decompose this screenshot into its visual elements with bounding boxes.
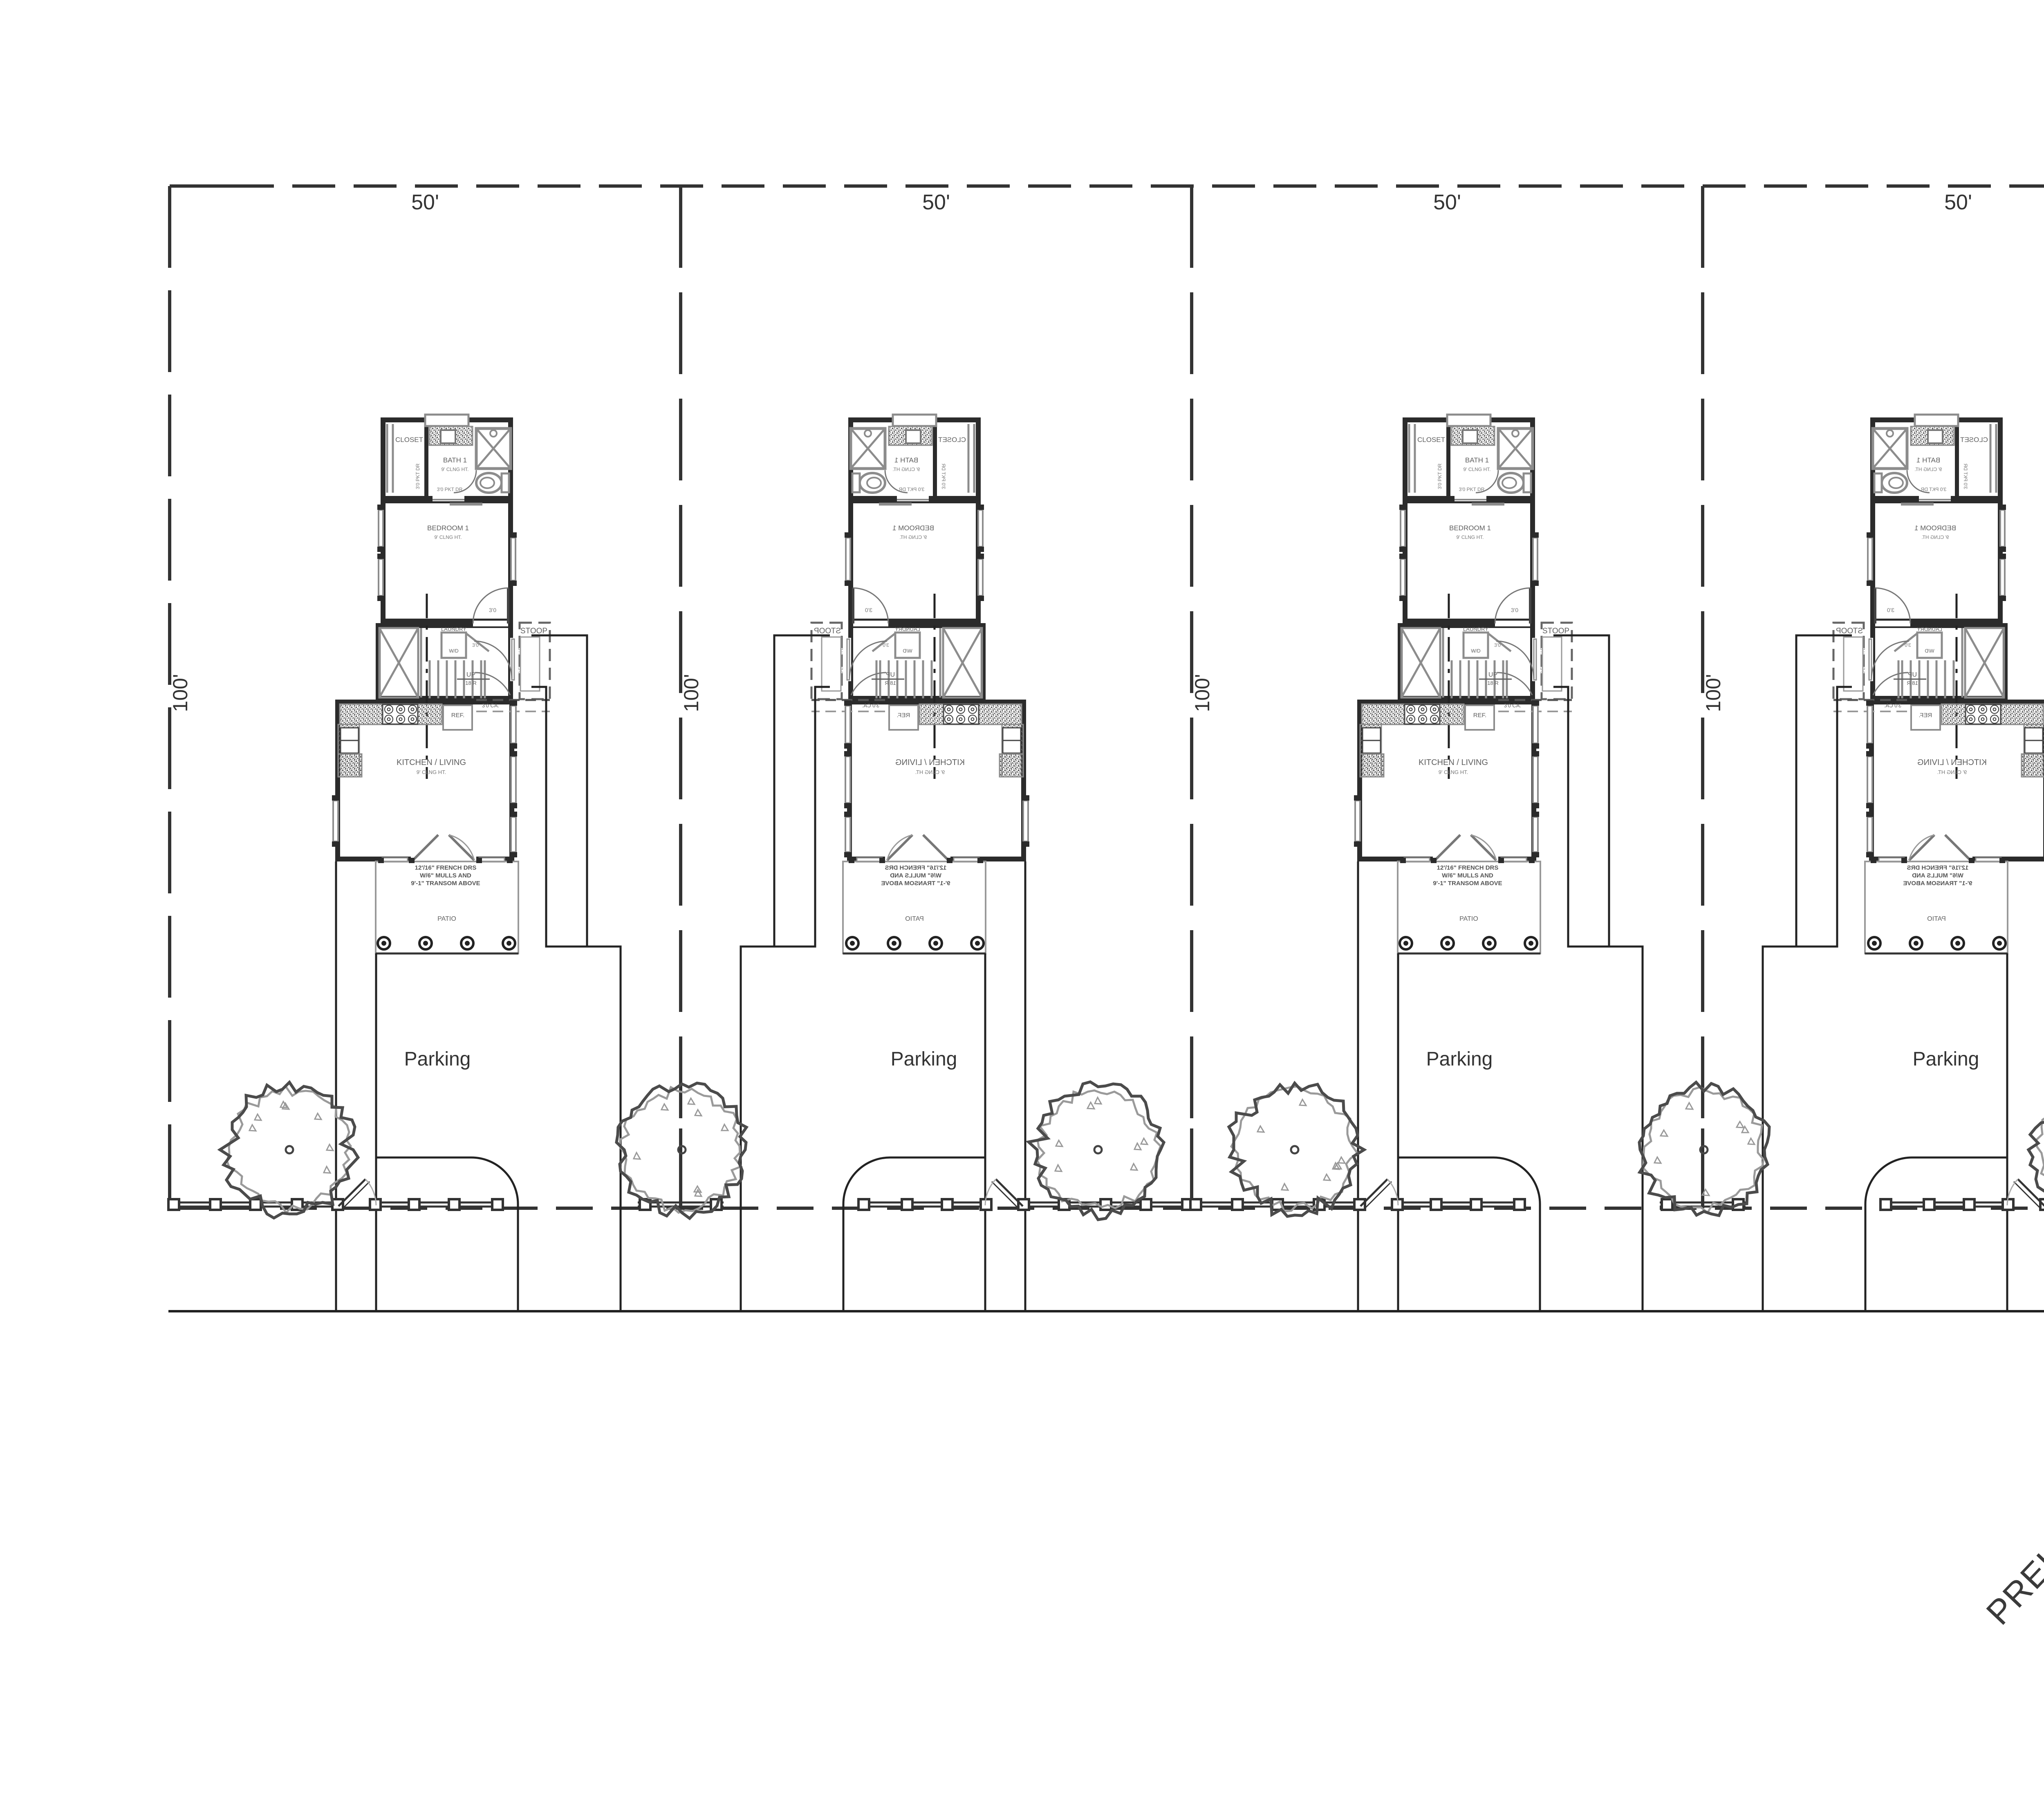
svg-text:50': 50' bbox=[922, 191, 950, 214]
svg-text:50': 50' bbox=[1944, 191, 1972, 214]
svg-text:Parking: Parking bbox=[1913, 1048, 1979, 1070]
svg-text:100': 100' bbox=[169, 674, 192, 712]
svg-text:100': 100' bbox=[1191, 674, 1214, 712]
svg-text:Parking: Parking bbox=[1426, 1048, 1493, 1070]
svg-text:50': 50' bbox=[1433, 191, 1461, 214]
svg-text:100': 100' bbox=[680, 674, 703, 712]
svg-text:Parking: Parking bbox=[891, 1048, 957, 1070]
svg-text:Parking: Parking bbox=[404, 1048, 471, 1070]
svg-text:100': 100' bbox=[1702, 674, 1725, 712]
svg-text:50': 50' bbox=[411, 191, 439, 214]
